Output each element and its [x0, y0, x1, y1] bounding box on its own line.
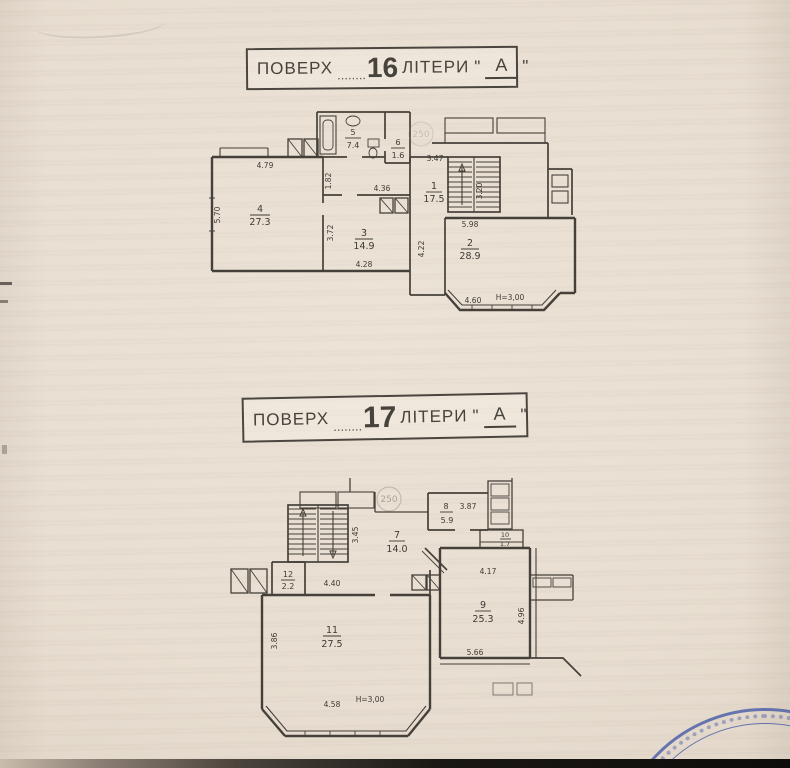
room10-area: 1.7	[500, 540, 510, 548]
plan16-pencil-circle: 250	[409, 122, 433, 146]
dim-3-47: 3.47	[427, 154, 444, 163]
dotted-leader: ........	[337, 67, 366, 87]
dim-4-17: 4.17	[480, 567, 497, 576]
plan16-walls	[209, 112, 575, 310]
room12-area: 2.2	[282, 582, 295, 591]
plan16-pencil-note: 250	[412, 130, 429, 140]
dim-4-58: 4.58	[324, 700, 341, 709]
close-quote: "	[522, 57, 528, 77]
letter-word: ЛІТЕРИ	[400, 406, 468, 427]
room2-area: 28.9	[459, 251, 480, 262]
room5-area: 7.4	[347, 141, 360, 150]
room6-area: 1.6	[392, 151, 405, 160]
building-letter: А	[483, 403, 515, 428]
room11-number: 11	[326, 625, 338, 636]
room8-area: 5.9	[441, 516, 454, 525]
room3-area: 14.9	[353, 241, 374, 252]
dim-4-40: 4.40	[324, 579, 341, 588]
pencil-scribble	[34, 9, 165, 42]
room6-number: 6	[395, 138, 400, 147]
dim-5-66: 5.66	[467, 648, 484, 657]
room12-number: 12	[283, 570, 293, 579]
room1-number: 1	[431, 181, 437, 192]
room1-area: 17.5	[423, 194, 444, 205]
floor17-title-box: ПОВЕРХ ........ 17 ЛІТЕРИ " А "	[242, 392, 529, 442]
floor16-plan: 250 4 27.3 3 14.9 1 17.5 2 28.9 5 7.4 6 …	[192, 103, 592, 338]
open-quote: "	[474, 57, 480, 77]
dim-3-45: 3.45	[351, 526, 360, 543]
dim-5-70: 5.70	[213, 206, 222, 223]
letter-word: ЛІТЕРИ	[402, 57, 469, 78]
room8-number: 8	[443, 502, 448, 511]
room2-number: 2	[467, 238, 473, 249]
floor-word: ПОВЕРХ	[253, 409, 329, 430]
dim-4-22: 4.22	[417, 240, 426, 257]
plan17-pencil-circle: 250	[377, 487, 401, 511]
floor-number: 16	[367, 54, 398, 82]
floor-number: 17	[363, 402, 397, 433]
close-quote: "	[520, 405, 526, 425]
scanned-floorplan-page: ПОВЕРХ ........ 16 ЛІТЕРИ " А "	[0, 0, 790, 768]
scan-mark	[0, 300, 8, 303]
room7-number: 7	[394, 530, 400, 541]
open-quote: "	[472, 406, 478, 426]
dim-3-72: 3.72	[326, 224, 335, 241]
floor17-plan: 250 7 14.0 8 3.87 5.9 9 25.3 10 1.7 11 2…	[225, 478, 585, 748]
height-note-17: H=3,00	[356, 695, 385, 704]
dim-3-87: 3.87	[460, 502, 477, 511]
dotted-leader: ........	[333, 418, 362, 439]
building-letter: А	[485, 55, 517, 79]
dim-4-79: 4.79	[257, 161, 274, 170]
dim-3-86: 3.86	[270, 632, 279, 649]
scan-mark	[2, 445, 7, 454]
dim-4-96: 4.96	[517, 607, 526, 624]
room9-area: 25.3	[472, 614, 493, 625]
plan17-labels: 7 14.0 8 3.87 5.9 9 25.3 10 1.7 11 27.5 …	[270, 502, 526, 709]
room11-area: 27.5	[321, 639, 342, 650]
dim-1-82: 1.82	[324, 172, 333, 189]
dim-4-36: 4.36	[374, 184, 391, 193]
room10-number: 10	[501, 531, 509, 539]
height-note-16: H=3,00	[496, 293, 525, 302]
dim-4-28: 4.28	[356, 260, 373, 269]
room5-number: 5	[350, 128, 355, 137]
dim-5-98: 5.98	[462, 220, 479, 229]
floor-word: ПОВЕРХ	[257, 58, 333, 79]
floor16-title-box: ПОВЕРХ ........ 16 ЛІТЕРИ " А "	[246, 46, 518, 90]
scan-mark	[0, 282, 12, 285]
dim-3-20: 3.20	[475, 182, 484, 199]
room4-number: 4	[257, 204, 263, 215]
room3-number: 3	[361, 228, 367, 239]
plan17-walls	[231, 478, 581, 736]
scan-edge	[0, 759, 790, 768]
dim-4-60: 4.60	[465, 296, 482, 305]
room4-area: 27.3	[249, 217, 270, 228]
room7-area: 14.0	[386, 544, 407, 555]
room9-number: 9	[480, 600, 486, 611]
plan17-pencil-note: 250	[380, 495, 397, 505]
